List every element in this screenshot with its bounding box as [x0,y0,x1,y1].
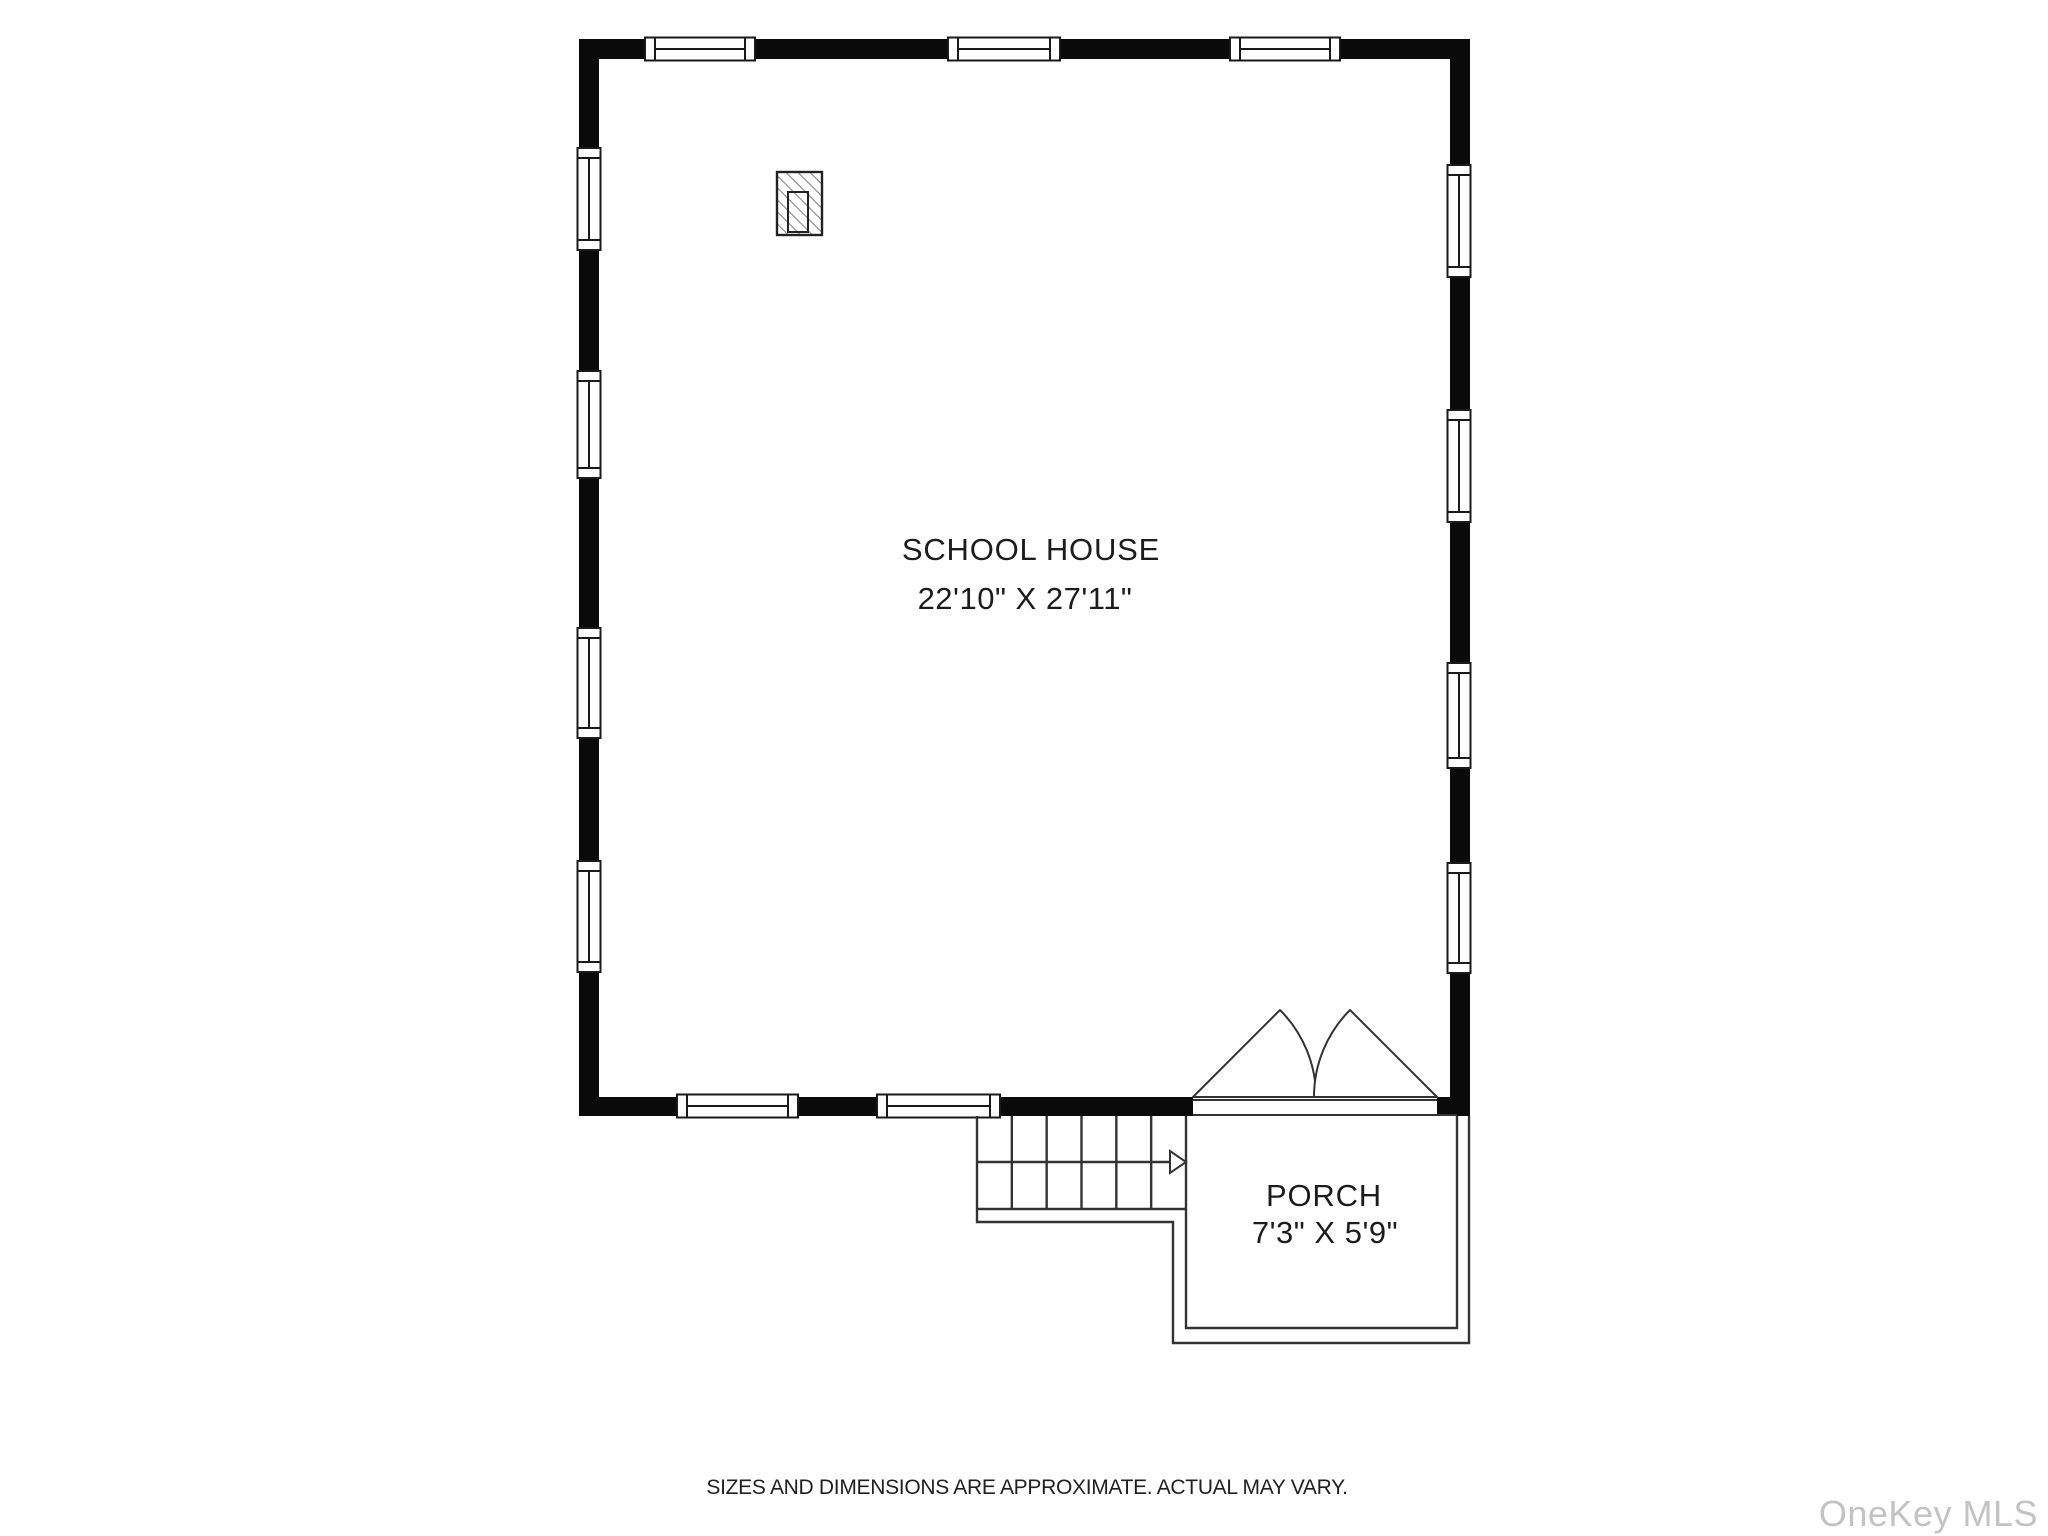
room-dimensions: 22'10" X 27'11" [918,581,1133,617]
window-symbol [578,628,601,738]
windows-top-wall [645,38,1340,61]
floor-plan-page: SCHOOL HOUSE 22'10" X 27'11" PORCH 7'3" … [0,0,2048,1536]
chimney-icon [777,172,822,235]
window-symbol [877,1095,1000,1118]
window-symbol [1448,663,1471,768]
floor-plan-drawing [0,0,2048,1536]
staircase [977,1116,1186,1209]
exterior-walls [579,39,1470,1116]
door-leaf-right [1314,1010,1437,1097]
window-symbol [1448,863,1471,973]
watermark: OneKey MLS [1819,1493,2038,1535]
porch-label: PORCH [1266,1178,1382,1214]
window-symbol [578,861,601,972]
room-label: SCHOOL HOUSE [902,532,1160,568]
window-symbol [578,148,601,250]
stairs-direction-arrow-icon [1170,1151,1186,1173]
window-symbol [948,38,1060,61]
window-symbol [1448,410,1471,522]
window-symbol [677,1095,798,1118]
window-symbol [1448,165,1471,277]
window-symbol [645,38,755,61]
window-symbol [578,371,601,478]
window-symbol [1230,38,1340,61]
double-door-swing-icon [1193,1010,1437,1097]
disclaimer-text: SIZES AND DIMENSIONS ARE APPROXIMATE. AC… [706,1476,1347,1500]
porch-dimensions: 7'3" X 5'9" [1252,1215,1398,1251]
door-leaf-left [1193,1010,1316,1097]
